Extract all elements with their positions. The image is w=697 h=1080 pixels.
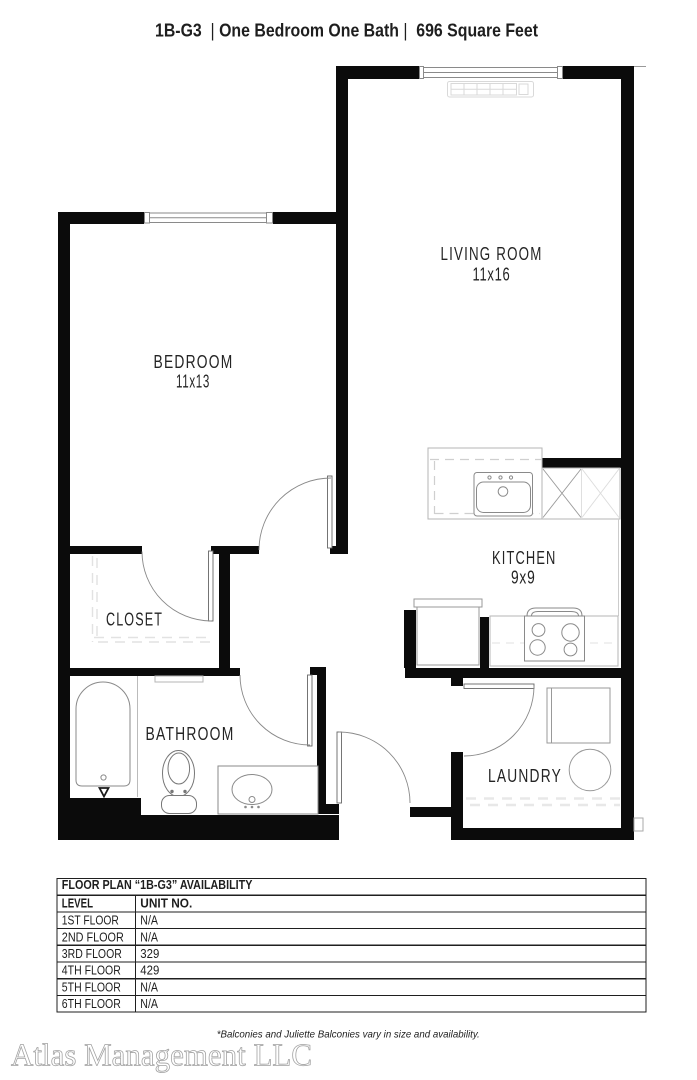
svg-text:UNIT NO.: UNIT NO. [140,896,192,911]
svg-text:9x9: 9x9 [511,568,536,588]
svg-text:LIVING ROOM: LIVING ROOM [441,244,543,264]
svg-text:429: 429 [140,963,159,978]
svg-text:N/A: N/A [140,929,158,944]
svg-text:FLOOR PLAN “1B-G3” AVAILABILIT: FLOOR PLAN “1B-G3” AVAILABILITY [62,877,253,892]
svg-text:KITCHEN: KITCHEN [492,548,557,568]
svg-text:11x13: 11x13 [176,372,210,392]
svg-text:BATHROOM: BATHROOM [146,724,235,744]
svg-text:1B-G3 | One Bedroom One Bath: 1B-G3 | One Bedroom One Bath | 696 Squar… [155,21,538,41]
svg-text:2ND FLOOR: 2ND FLOOR [62,929,124,944]
svg-text:329: 329 [140,946,159,961]
svg-text:N/A: N/A [140,913,158,928]
svg-text:4TH FLOOR: 4TH FLOOR [62,963,121,978]
svg-text:3RD FLOOR: 3RD FLOOR [62,946,122,961]
svg-text:N/A: N/A [140,979,158,994]
svg-text:6TH FLOOR: 6TH FLOOR [62,996,121,1011]
svg-text:1ST FLOOR: 1ST FLOOR [62,913,119,928]
svg-text:5TH FLOOR: 5TH FLOOR [62,979,121,994]
svg-text:N/A: N/A [140,996,158,1011]
svg-text:LEVEL: LEVEL [62,896,93,911]
svg-text:Atlas Management LLC: Atlas Management LLC [11,1037,312,1073]
svg-text:LAUNDRY: LAUNDRY [488,766,562,786]
svg-text:CLOSET: CLOSET [106,610,163,630]
svg-text:BEDROOM: BEDROOM [154,352,234,372]
svg-text:11x16: 11x16 [473,265,511,285]
